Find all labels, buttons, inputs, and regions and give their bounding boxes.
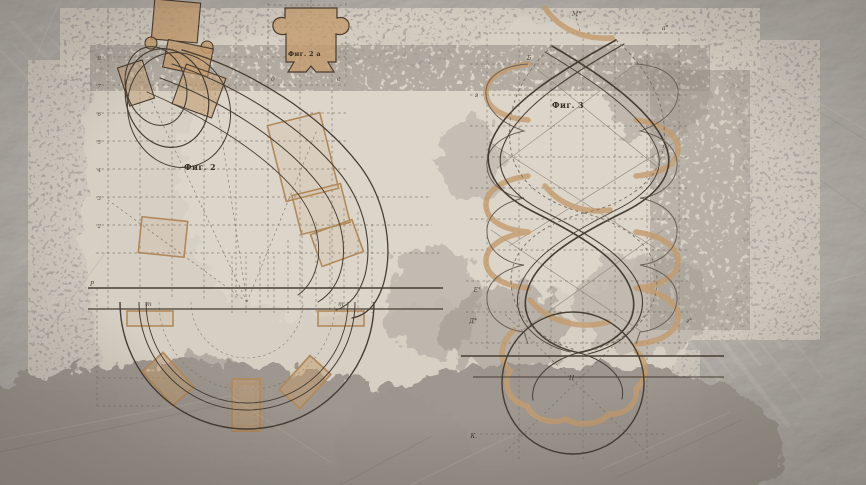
drawing-canvas: Фиг. 2 8 7 6 5 4 3 2 Р m m Фиг. 2 а д е (0, 0, 866, 485)
vignette-overlay (0, 0, 866, 485)
engraving-plate: Фиг. 2 8 7 6 5 4 3 2 Р m m Фиг. 2 а д е (0, 0, 866, 485)
